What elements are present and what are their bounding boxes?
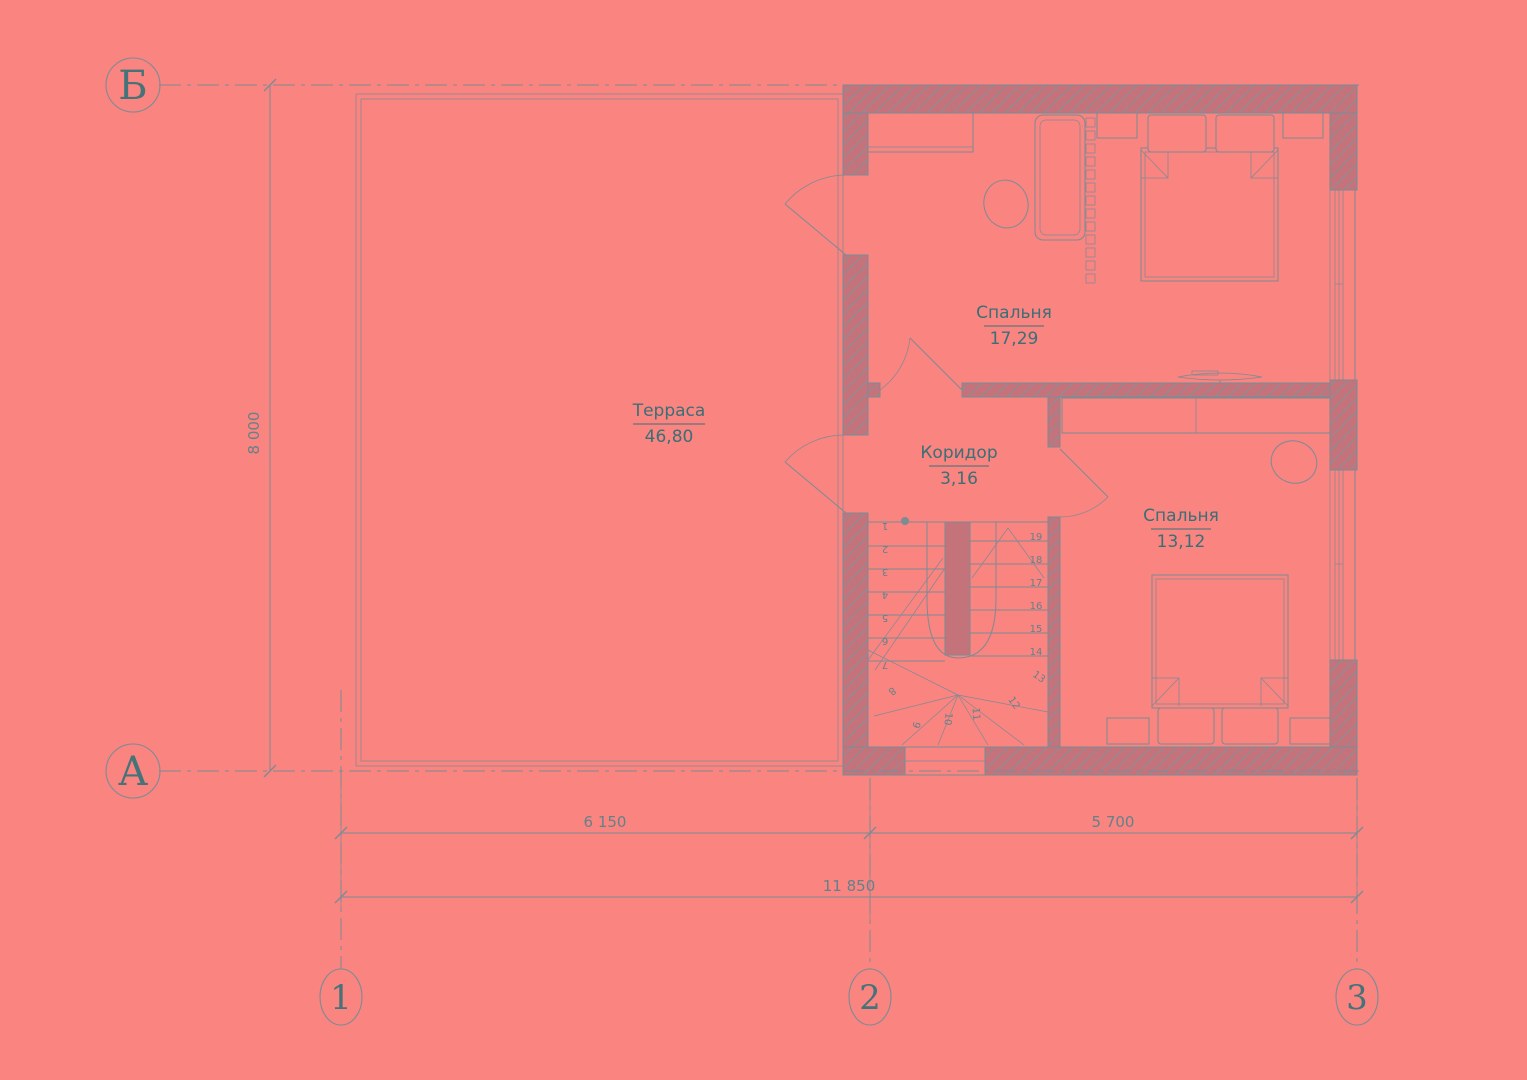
- step-number: 5: [882, 612, 888, 623]
- west-wall-2: [843, 255, 868, 435]
- window-bedroom2: [1330, 470, 1357, 660]
- bedroom2-furniture: [1062, 398, 1330, 744]
- step-number: 6: [882, 635, 888, 646]
- east-wall-bottom: [1330, 660, 1357, 747]
- bedroom1-label: Спальня 17,29: [976, 303, 1052, 349]
- stair-spine: [945, 522, 970, 655]
- step-number: 1: [882, 520, 888, 531]
- walls: [843, 85, 1357, 775]
- stair-newel-post: [901, 517, 909, 525]
- axis-label-3: 3: [1346, 978, 1368, 1018]
- dim-height: 8 000: [245, 412, 263, 455]
- room-area: 13,12: [1157, 532, 1206, 552]
- interior-wall-horizontal: [962, 383, 1330, 397]
- axis-label-1: 1: [330, 978, 352, 1018]
- axis-label-2: 2: [859, 978, 881, 1018]
- room-area: 17,29: [990, 329, 1039, 349]
- dim-span-left: 6 150: [584, 813, 627, 831]
- west-wall-1: [843, 113, 868, 175]
- floor-plan-page: 1 2 3 4 5 6 7 8 9 10 11 12 13 14 15 16 1…: [0, 0, 1527, 1080]
- nightstand: [1283, 113, 1323, 138]
- axis-label-B: Б: [118, 63, 147, 109]
- wardrobe: [1062, 398, 1330, 433]
- corridor-label: Коридор 3,16: [920, 443, 997, 489]
- pillow: [1158, 708, 1214, 744]
- bedroom2-label: Спальня 13,12: [1143, 506, 1219, 552]
- step-number: 19: [1030, 532, 1043, 543]
- dim-total: 11 850: [823, 877, 876, 895]
- room-name: Спальня: [1143, 506, 1219, 526]
- nightstand: [1097, 113, 1137, 138]
- east-wall-pier: [1330, 380, 1357, 470]
- shelf-strip: [1086, 118, 1095, 283]
- step-number: 12: [1005, 695, 1021, 712]
- step-number: 15: [1030, 624, 1043, 635]
- bedroom1-furniture: [868, 113, 1323, 384]
- west-wall-3: [843, 513, 868, 747]
- pillow: [1148, 115, 1206, 152]
- room-name: Коридор: [920, 443, 997, 463]
- door-corridor-bedroom1: [880, 338, 962, 397]
- step-number: 8: [886, 684, 898, 697]
- step-number: 9: [909, 720, 921, 729]
- door-corridor-terrace: [785, 435, 868, 513]
- step-number: 4: [882, 589, 888, 600]
- step-number: 10: [941, 712, 953, 726]
- step-number: 16: [1030, 601, 1043, 612]
- window-bedroom1: [1330, 190, 1357, 380]
- interior-wall-vertical: [1048, 517, 1060, 747]
- room-name: Терраса: [632, 401, 706, 421]
- axis-label-A: А: [118, 749, 148, 795]
- floor-plan-drawing: 1 2 3 4 5 6 7 8 9 10 11 12 13 14 15 16 1…: [0, 0, 1527, 1080]
- desk: [1035, 115, 1085, 240]
- pillow: [1216, 115, 1274, 152]
- closet: [868, 113, 973, 152]
- nightstand: [1107, 718, 1149, 744]
- terrace-label: Терраса 46,80: [632, 401, 706, 447]
- room-area: 3,16: [940, 469, 978, 489]
- tv-console: [1178, 371, 1262, 384]
- north-wall: [843, 85, 1357, 113]
- staircase: 1 2 3 4 5 6 7 8 9 10 11 12 13 14 15 16 1…: [868, 517, 1048, 745]
- bed: [1152, 575, 1288, 708]
- pillow: [1222, 708, 1278, 744]
- bed: [1141, 148, 1278, 281]
- step-number: 18: [1030, 555, 1043, 566]
- step-number: 11: [969, 707, 981, 721]
- step-number: 14: [1030, 647, 1043, 658]
- step-number: 17: [1030, 578, 1043, 589]
- terrace-railing: [356, 94, 843, 766]
- east-wall-top: [1330, 113, 1357, 190]
- desk-chair: [979, 175, 1034, 233]
- step-number: 2: [882, 543, 888, 554]
- step-number: 7: [882, 659, 888, 670]
- door-corridor-bedroom2: [1048, 447, 1108, 517]
- room-labels: Терраса 46,80 Спальня 17,29 Коридор 3,16…: [632, 303, 1219, 552]
- chair: [1265, 434, 1323, 489]
- nightstand: [1290, 718, 1330, 744]
- dim-span-right: 5 700: [1092, 813, 1135, 831]
- room-name: Спальня: [976, 303, 1052, 323]
- step-number: 3: [882, 566, 888, 577]
- door-bedroom1-terrace: [785, 175, 868, 255]
- step-number: 13: [1030, 669, 1047, 685]
- room-area: 46,80: [645, 427, 694, 447]
- dimension-lines: 8 000 6 150 5 700 11 850: [245, 79, 1363, 920]
